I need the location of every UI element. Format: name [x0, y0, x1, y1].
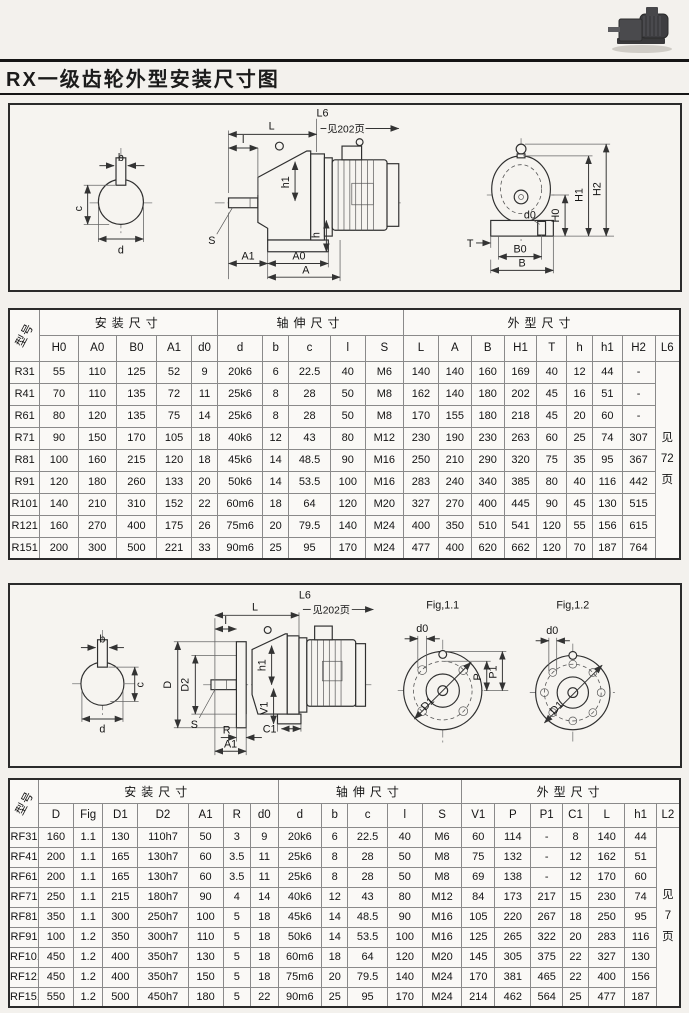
cell: 51	[593, 383, 623, 405]
column-header: S	[365, 335, 403, 361]
dim-label-L6: L6	[316, 108, 328, 120]
cell: 283	[589, 927, 625, 947]
cell: 80	[330, 427, 365, 449]
dim-label-d0: d0	[524, 209, 536, 221]
cell: 110	[78, 383, 116, 405]
cell: 40	[566, 471, 592, 493]
cell: 152	[157, 493, 192, 515]
cell: 130h7	[138, 847, 188, 867]
cell: 80	[537, 471, 567, 493]
cell: M6	[422, 827, 462, 847]
cell: 72	[157, 383, 192, 405]
r-series-dimension-table: 型号 安装尺寸 轴伸尺寸 外型尺寸 H0A0B0A1d0dbclSLABH1Th…	[8, 308, 681, 560]
cell: M6	[365, 361, 403, 383]
cell: 14	[263, 471, 289, 493]
flange-fig-1-2: Fig,1.2 d0 D1	[530, 599, 618, 743]
cell: 400	[589, 967, 625, 987]
cell: 6	[263, 361, 289, 383]
table-row: RF41 2001.1165130h7603.51125k682850M8751…	[9, 847, 680, 867]
cell: 8	[263, 383, 289, 405]
model-cell: R101	[9, 493, 40, 515]
gear-motor-photo	[604, 5, 676, 55]
column-header: B0	[116, 335, 156, 361]
cell: 615	[622, 515, 655, 537]
cell: 250	[589, 907, 625, 927]
cell: 48.5	[289, 449, 331, 471]
see-page-note: 见7页	[656, 827, 680, 1007]
cell: 74	[625, 887, 657, 907]
cell: 187	[625, 987, 657, 1007]
cell: 120	[330, 493, 365, 515]
cell: 140	[40, 493, 78, 515]
cell: 214	[462, 987, 495, 1007]
cell: 283	[403, 471, 438, 493]
fig-1-2-label: Fig,1.2	[556, 599, 589, 611]
cell: 44	[625, 827, 657, 847]
column-header: d0	[251, 803, 279, 827]
cell: 14	[263, 449, 289, 471]
cell: 14	[322, 927, 348, 947]
column-header: H2	[622, 335, 655, 361]
cell: 95	[289, 537, 331, 559]
cell: 320	[504, 449, 537, 471]
cell: 200	[39, 847, 74, 867]
column-header: b	[263, 335, 289, 361]
cell: 120	[537, 515, 567, 537]
cell: 130	[593, 493, 623, 515]
dim-label-H2: H2	[591, 182, 603, 196]
column-header: D1	[103, 803, 138, 827]
model-cell: RF101	[9, 947, 39, 967]
table-row: RF61 2001.1165130h7603.51125k682850M8691…	[9, 867, 680, 887]
model-cell: R61	[9, 405, 40, 427]
cell: 350h7	[138, 947, 188, 967]
cell: 90m6	[218, 537, 263, 559]
cell: 400	[471, 493, 504, 515]
cell: 160	[39, 827, 74, 847]
cell: M8	[365, 405, 403, 427]
cell: 465	[531, 967, 563, 987]
cell: 40k6	[278, 887, 322, 907]
cell: 322	[531, 927, 563, 947]
dim-label-h1: h1	[280, 176, 292, 188]
dim-label-S: S	[208, 235, 215, 247]
cell: 100	[188, 907, 223, 927]
cell: 22.5	[289, 361, 331, 383]
cell: 1.2	[73, 987, 103, 1007]
cell: 307	[622, 427, 655, 449]
cell: 12	[562, 867, 588, 887]
column-header: R	[223, 803, 251, 827]
cell: 8	[263, 405, 289, 427]
column-header: d	[218, 335, 263, 361]
cell: 52	[157, 361, 192, 383]
column-header: L2	[656, 803, 680, 827]
cell: -	[622, 405, 655, 427]
cell: 210	[438, 449, 471, 471]
dim-label-P: P	[472, 673, 484, 680]
cell: 1.2	[73, 967, 103, 987]
table-row: RF71 2501.1215180h79041440k6124380M12841…	[9, 887, 680, 907]
cell: 18	[251, 967, 279, 987]
cell: 385	[504, 471, 537, 493]
cell: 218	[504, 405, 537, 427]
table-row: RF121 4501.2400350h715051875m62079.5140M…	[9, 967, 680, 987]
cell: 15	[562, 887, 588, 907]
cell: 35	[566, 449, 592, 471]
cell: 5	[223, 987, 251, 1007]
table-row: R121 1602704001752675m62079.5140M2440035…	[9, 515, 680, 537]
cell: 18	[191, 427, 217, 449]
cell: 263	[504, 427, 537, 449]
cell: 51	[625, 847, 657, 867]
cell: 160	[78, 449, 116, 471]
cell: 22.5	[348, 827, 388, 847]
cell: M24	[365, 515, 403, 537]
table-row: R61 80120135751425k682850M81701551802184…	[9, 405, 680, 427]
cell: 60m6	[278, 947, 322, 967]
cell: 156	[593, 515, 623, 537]
cell: 350	[438, 515, 471, 537]
model-column-header: 型号	[9, 779, 39, 827]
cell: 95	[593, 449, 623, 471]
dim-label-h1: h1	[257, 659, 269, 671]
cell: 60	[625, 867, 657, 887]
cell: 310	[116, 493, 156, 515]
cell: 133	[157, 471, 192, 493]
cell: 202	[504, 383, 537, 405]
table-body: RF31 1601.1130110h7503920k6622.540M66011…	[9, 827, 680, 1007]
column-header: D2	[138, 803, 188, 827]
cell: 230	[589, 887, 625, 907]
cell: 110	[78, 361, 116, 383]
cell: 64	[289, 493, 331, 515]
cell: 75m6	[278, 967, 322, 987]
cell: 220	[495, 907, 531, 927]
cell: 217	[531, 887, 563, 907]
cell: 230	[403, 427, 438, 449]
cell: 50k6	[218, 471, 263, 493]
cell: 1.2	[73, 947, 103, 967]
cell: 267	[531, 907, 563, 927]
table-row: RF31 1601.1130110h7503920k6622.540M66011…	[9, 827, 680, 847]
cell: 105	[462, 907, 495, 927]
cell: 230	[471, 427, 504, 449]
dim-label-C1: C1	[263, 724, 277, 736]
cell: 400	[403, 515, 438, 537]
cell: 9	[191, 361, 217, 383]
cell: 200	[39, 867, 74, 887]
dim-label-P1: P1	[488, 665, 500, 678]
dim-label-b: b	[118, 152, 124, 164]
column-header: L	[403, 335, 438, 361]
cell: 130	[188, 947, 223, 967]
cell: 165	[103, 867, 138, 887]
cell: 50	[188, 827, 223, 847]
cell: 80	[40, 405, 78, 427]
cell: M20	[365, 493, 403, 515]
cell: M24	[365, 537, 403, 559]
cell: 135	[116, 383, 156, 405]
dim-label-B: B	[518, 257, 525, 269]
group-header-row: 型号 安装尺寸 轴伸尺寸 外型尺寸	[9, 309, 680, 335]
table-row: RF151 5501.2500450h718052290m62595170M24…	[9, 987, 680, 1007]
cell: 45	[566, 493, 592, 515]
cell: 70	[40, 383, 78, 405]
cell: 18	[191, 449, 217, 471]
cell: M20	[422, 947, 462, 967]
cell: 75	[157, 405, 192, 427]
dim-label-A1: A1	[242, 251, 255, 263]
column-header: H0	[40, 335, 78, 361]
cell: 450	[39, 947, 74, 967]
cell: 50k6	[278, 927, 322, 947]
cell: 130	[103, 827, 138, 847]
cell: 8	[322, 867, 348, 887]
reducer-side-view: D D2 L L6 见202页 l S	[162, 590, 373, 755]
cell: 44	[593, 361, 623, 383]
column-header: P1	[531, 803, 563, 827]
fig-1-1-label: Fig,1.1	[426, 599, 459, 611]
cell: M24	[422, 967, 462, 987]
cell: 541	[504, 515, 537, 537]
cell: 162	[403, 383, 438, 405]
model-cell: R41	[9, 383, 40, 405]
cell: 18	[322, 947, 348, 967]
cell: 450h7	[138, 987, 188, 1007]
cell: 350	[39, 907, 74, 927]
cell: 3	[223, 827, 251, 847]
cell: 18	[251, 947, 279, 967]
cell: 18	[562, 907, 588, 927]
dim-label-l: l	[242, 134, 244, 146]
cell: 145	[462, 947, 495, 967]
cell: 240	[438, 471, 471, 493]
cell: M24	[422, 987, 462, 1007]
reducer-side-view: L L6 见202页 l S h1 h A1 A0 A	[208, 108, 402, 281]
cell: 9	[251, 827, 279, 847]
cell: M8	[422, 867, 462, 887]
table-row: R31 5511012552920k6622.540M6140140160169…	[9, 361, 680, 383]
cell: 3.5	[223, 867, 251, 887]
cell: 400	[438, 537, 471, 559]
cell: 100	[39, 927, 74, 947]
cell: 75m6	[218, 515, 263, 537]
photo-shadow	[612, 45, 672, 53]
table-row: R101 1402103101522260m61864120M203272704…	[9, 493, 680, 515]
dim-label-c: c	[135, 681, 147, 687]
cell: 120	[387, 947, 422, 967]
cell: 170	[387, 987, 422, 1007]
cell: 12	[322, 887, 348, 907]
cell: 442	[622, 471, 655, 493]
cell: M12	[422, 887, 462, 907]
dim-label-V1: V1	[259, 702, 271, 715]
column-header: b	[322, 803, 348, 827]
cell: 1.1	[73, 827, 103, 847]
cell: 160	[40, 515, 78, 537]
cell: 100	[330, 471, 365, 493]
catalog-page: RX一级齿轮外型安装尺寸图 b c d	[0, 0, 689, 1013]
cell: 90	[387, 907, 422, 927]
cell: 53.5	[289, 471, 331, 493]
cell: 25	[322, 987, 348, 1007]
group-header-outline: 外型尺寸	[403, 309, 680, 335]
cell: 4	[223, 887, 251, 907]
column-header: Fig	[73, 803, 103, 827]
cell: 45	[537, 383, 567, 405]
cell: 90	[537, 493, 567, 515]
dim-label-b: b	[99, 634, 105, 646]
cell: 170	[403, 405, 438, 427]
cell: 515	[622, 493, 655, 515]
cell: 662	[504, 537, 537, 559]
cell: 400	[103, 947, 138, 967]
model-cell: R31	[9, 361, 40, 383]
cell: 564	[531, 987, 563, 1007]
cell: 74	[593, 427, 623, 449]
model-cell: RF41	[9, 847, 39, 867]
see-page-note: 见72页	[655, 361, 680, 559]
cell: 140	[438, 383, 471, 405]
cell: 79.5	[348, 967, 388, 987]
cell: 22	[562, 947, 588, 967]
cell: 6	[322, 827, 348, 847]
column-header: T	[537, 335, 567, 361]
cell: 367	[622, 449, 655, 471]
cell: 100	[40, 449, 78, 471]
cell: 60	[188, 867, 223, 887]
dim-label-L: L	[252, 601, 258, 613]
column-header: A0	[78, 335, 116, 361]
table-body: R31 5511012552920k6622.540M6140140160169…	[9, 361, 680, 559]
column-header: A	[438, 335, 471, 361]
cell: 90	[330, 449, 365, 471]
cell: 300	[78, 537, 116, 559]
column-header: L6	[655, 335, 680, 361]
cell: 60	[462, 827, 495, 847]
cell: 55	[40, 361, 78, 383]
cell: 375	[531, 947, 563, 967]
cell: 18	[251, 907, 279, 927]
cell: -	[531, 867, 563, 887]
cell: 84	[462, 887, 495, 907]
column-header: B	[471, 335, 504, 361]
cell: 28	[289, 405, 331, 427]
cell: 162	[589, 847, 625, 867]
see-page-202-note: 见202页	[327, 123, 365, 135]
cell: 180	[188, 987, 223, 1007]
column-header: d0	[191, 335, 217, 361]
cell: M8	[365, 383, 403, 405]
cell: 477	[589, 987, 625, 1007]
cell: 20	[566, 405, 592, 427]
group-header-row: 型号 安装尺寸 轴伸尺寸 外型尺寸	[9, 779, 680, 803]
cell: 160	[471, 361, 504, 383]
model-cell: R71	[9, 427, 40, 449]
cell: 14	[191, 405, 217, 427]
gearbox-housing	[619, 19, 642, 41]
cell: 22	[191, 493, 217, 515]
model-cell: RF151	[9, 987, 39, 1007]
cell: 45	[537, 405, 567, 427]
dim-label-d0: d0	[546, 625, 558, 637]
column-header: H1	[504, 335, 537, 361]
cell: 210	[78, 493, 116, 515]
cell: 180	[471, 405, 504, 427]
cell: 130h7	[138, 867, 188, 887]
title-rule-bottom	[0, 93, 689, 95]
cell: 221	[157, 537, 192, 559]
cell: 170	[330, 537, 365, 559]
cell: M16	[365, 449, 403, 471]
cell: 26	[191, 515, 217, 537]
cell: 60m6	[218, 493, 263, 515]
column-header: l	[387, 803, 422, 827]
cell: 11	[251, 847, 279, 867]
cell: 250	[39, 887, 74, 907]
cell: 305	[495, 947, 531, 967]
column-header: A1	[188, 803, 223, 827]
cell: 215	[103, 887, 138, 907]
model-cell: R121	[9, 515, 40, 537]
cell: 170	[589, 867, 625, 887]
group-header-outline: 外型尺寸	[462, 779, 680, 803]
cell: 11	[191, 383, 217, 405]
model-cell: R81	[9, 449, 40, 471]
cell: 116	[625, 927, 657, 947]
cell: 764	[622, 537, 655, 559]
column-header: V1	[462, 803, 495, 827]
cell: 140	[403, 361, 438, 383]
cell: 125	[462, 927, 495, 947]
cell: 43	[348, 887, 388, 907]
cell: 110	[188, 927, 223, 947]
cell: 14	[251, 887, 279, 907]
cell: 40	[537, 361, 567, 383]
dim-label-h: h	[311, 232, 323, 238]
column-header-row: H0A0B0A1d0dbclSLABH1Thh1H2L6	[9, 335, 680, 361]
cell: 40k6	[218, 427, 263, 449]
cell: 60	[537, 427, 567, 449]
column-header: c	[348, 803, 388, 827]
cell: 25	[263, 537, 289, 559]
cell: 79.5	[289, 515, 331, 537]
cell: 381	[495, 967, 531, 987]
cell: 180	[471, 383, 504, 405]
column-header: h	[566, 335, 592, 361]
cell: M8	[422, 847, 462, 867]
cell: 1.2	[73, 927, 103, 947]
cell: 25k6	[278, 867, 322, 887]
cell: -	[622, 383, 655, 405]
cell: 70	[566, 537, 592, 559]
cell: 1.1	[73, 887, 103, 907]
reducer-front-view: d0 T B0 B H0 H1 H2	[467, 138, 614, 273]
cell: 90	[188, 887, 223, 907]
cell: 5	[223, 907, 251, 927]
cell: 50	[330, 405, 365, 427]
model-cell: RF71	[9, 887, 39, 907]
dim-label-d0: d0	[416, 623, 428, 635]
cell: 64	[348, 947, 388, 967]
cell: -	[531, 847, 563, 867]
cell: 138	[495, 867, 531, 887]
cell: 120	[40, 471, 78, 493]
rf-series-dimension-table: 型号 安装尺寸 轴伸尺寸 外型尺寸 DFigD1D2A1Rd0dbclSV1PP…	[8, 778, 681, 1008]
dim-label-H0: H0	[550, 209, 562, 223]
cell: 265	[495, 927, 531, 947]
